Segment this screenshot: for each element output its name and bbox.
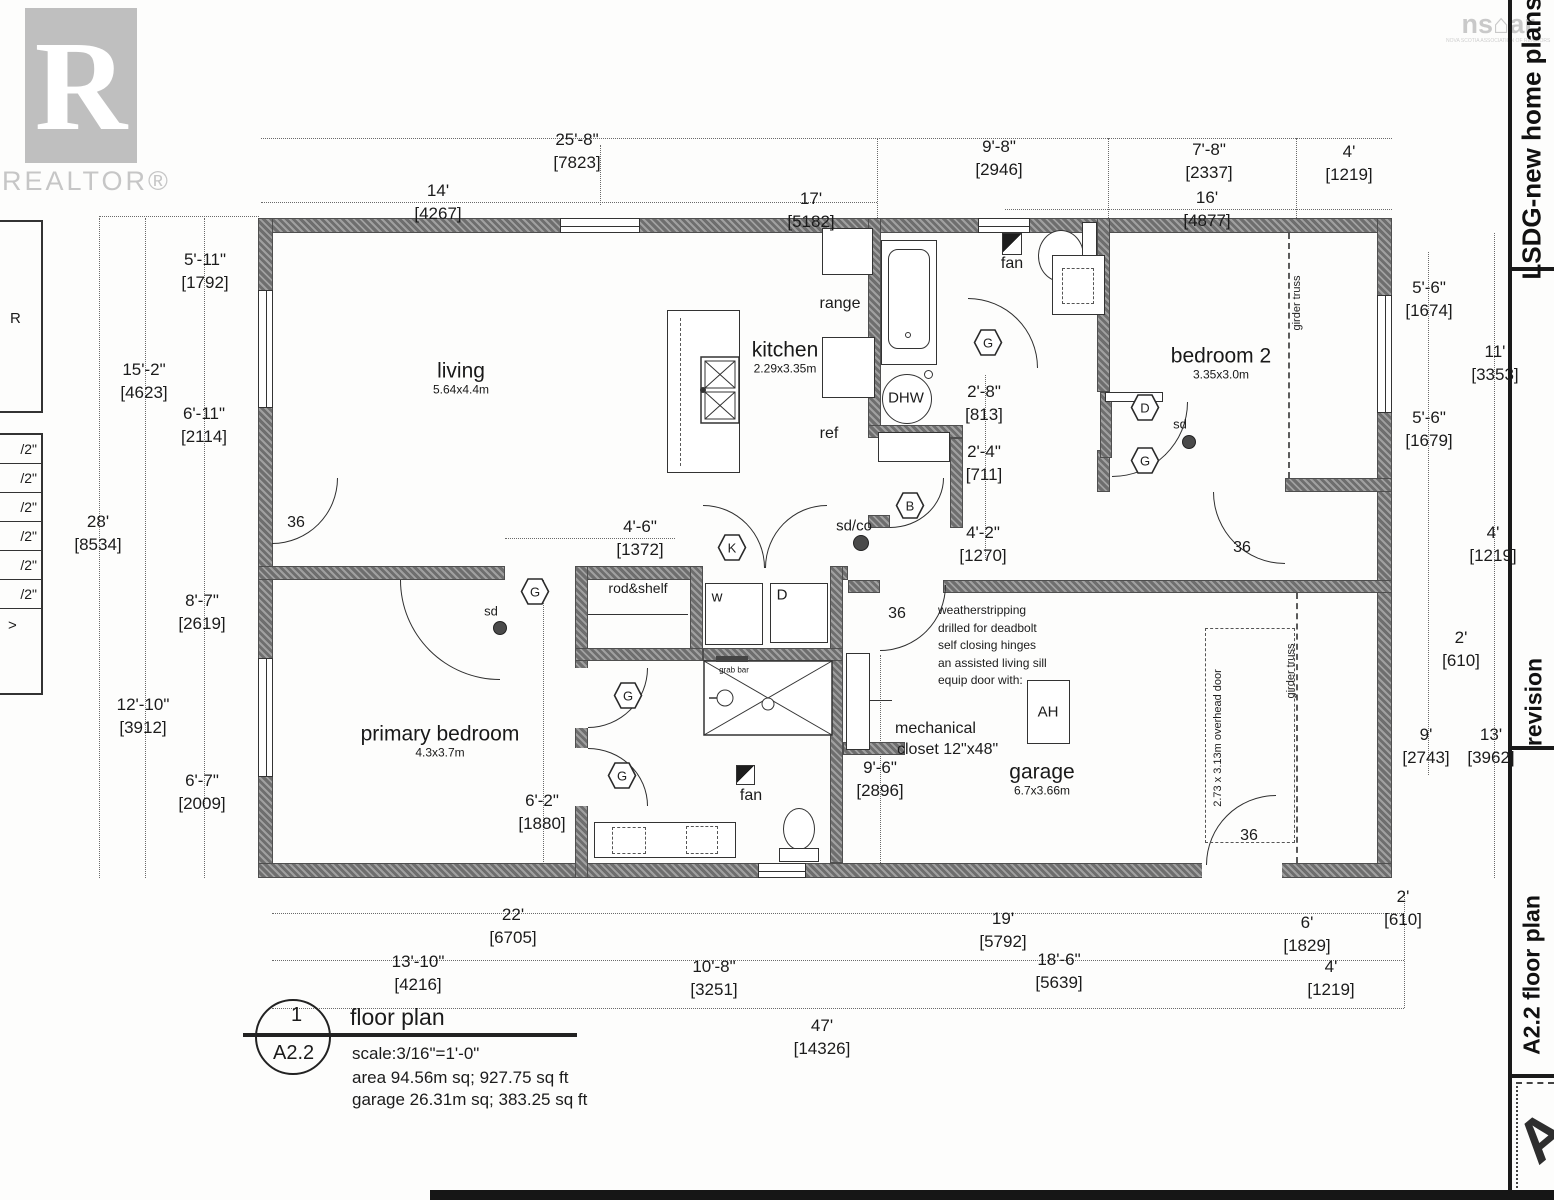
dimension-label: 15'-2"[4623] <box>120 358 167 404</box>
dimension-label: 5'-11"[1792] <box>181 248 228 294</box>
hex-symbol-g: G <box>973 329 1003 362</box>
decor: G <box>613 682 643 710</box>
dimension-label: 2'-8"[813] <box>965 380 1003 426</box>
door-size-label: 36 <box>1233 539 1251 557</box>
dimension-mm: [4267] <box>414 202 461 225</box>
dimension-feet: 9' <box>1402 723 1449 746</box>
door-spec-note: weatherstrippingdrilled for deadboltself… <box>938 602 1047 690</box>
dimension-feet: 5'-11" <box>181 248 228 271</box>
dimension-label: 4'-6"[1372] <box>616 515 663 561</box>
room-name: kitchen <box>752 339 819 362</box>
hex-letter: G <box>530 585 540 600</box>
room-size: 2.29x3.35m <box>752 362 819 376</box>
hex-symbol-g: G <box>613 682 643 715</box>
dimension-label: 6'[1829] <box>1283 911 1330 957</box>
dimension-mm: [2896] <box>856 779 903 802</box>
window <box>758 863 806 878</box>
plan-annotation: sd <box>1173 417 1187 432</box>
dimension-mm: [14326] <box>794 1037 851 1060</box>
dimension-label: 18'-6"[5639] <box>1035 948 1082 994</box>
dimension-feet: 9'-6" <box>856 756 903 779</box>
schedule-row: /2" <box>0 580 41 609</box>
wall-segment <box>575 566 703 580</box>
wall-segment <box>848 580 880 593</box>
room-size: 4.3x3.7m <box>361 746 520 760</box>
dimension-feet: 4' <box>1325 140 1372 163</box>
note-line: drilled for deadbolt <box>938 620 1047 638</box>
door-swing-arc <box>400 580 500 680</box>
note-line: weatherstripping <box>938 602 1047 620</box>
dimension-feet: 2'-4" <box>966 440 1003 463</box>
wall-segment <box>690 566 703 661</box>
plan-annotation: mechanical <box>895 720 976 738</box>
dimension-label: 25'-8"[7823] <box>553 128 600 174</box>
dimension-feet: 2'-8" <box>965 380 1003 403</box>
hex-letter: D <box>1140 401 1149 416</box>
dimension-feet: 13'-10" <box>392 950 445 973</box>
drawing-garage-area: garage 26.31m sq; 383.25 sq ft <box>352 1090 587 1110</box>
decor <box>717 690 733 706</box>
dimension-label: 2'[610] <box>1384 885 1422 931</box>
room-label: bedroom 23.35x3.0m <box>1171 345 1271 382</box>
dimension-mm: [610] <box>1442 649 1480 672</box>
dimension-label: 47'[14326] <box>794 1014 851 1060</box>
dimension-mm: [610] <box>1384 908 1422 931</box>
dimension-mm: [7823] <box>553 151 600 174</box>
left-schedule-bracket: R <box>0 220 43 413</box>
room-name: primary bedroom <box>361 723 520 746</box>
dimension-feet: 25'-8" <box>553 128 600 151</box>
plan-annotation: girder truss <box>1291 275 1303 330</box>
dimension-mm: [3251] <box>690 978 737 1001</box>
hex-letter: G <box>1140 454 1150 469</box>
realtor-logo-text: REALTOR® <box>2 166 171 197</box>
mech-closet-leader <box>870 700 892 701</box>
room-name: bedroom 2 <box>1171 345 1271 368</box>
dimension-mm: [4623] <box>120 381 167 404</box>
dimension-mm: [1674] <box>1405 299 1452 322</box>
schedule-row: /2" <box>0 493 41 522</box>
hex-letter: K <box>728 541 737 556</box>
dimension-mm: [1792] <box>181 271 228 294</box>
plan-annotation: 2.73 x 3.13m overhead door <box>1212 669 1224 807</box>
schedule-row: /2" <box>0 464 41 493</box>
smoke-detector-dot <box>493 621 507 635</box>
dimension-feet: 16' <box>1183 186 1230 209</box>
dimension-label: 4'-2"[1270] <box>959 521 1006 567</box>
dimension-feet: 14' <box>414 179 461 202</box>
dimension-feet: 9'-8" <box>975 135 1022 158</box>
plan-annotation: D <box>777 587 788 604</box>
sheet-corner-box: A <box>1516 1082 1554 1200</box>
dimension-feet: 4'-2" <box>959 521 1006 544</box>
dimension-feet: 2' <box>1442 626 1480 649</box>
ensuite-toilet-bowl <box>783 808 815 850</box>
dimension-feet: 6'-11" <box>181 402 227 425</box>
hex-symbol-d: D <box>1130 394 1160 427</box>
hex-symbol-b: B <box>895 492 925 525</box>
dimension-mm: [1219] <box>1307 978 1354 1001</box>
plan-annotation: rod&shelf <box>608 580 667 596</box>
window <box>258 658 273 777</box>
dimension-label: 4'[1219] <box>1307 955 1354 1001</box>
dimension-line <box>99 216 259 217</box>
mechanical-closet <box>846 653 870 750</box>
dimension-label: 9'-8"[2946] <box>975 135 1022 181</box>
dimension-mm: [2114] <box>181 425 227 448</box>
title-underline <box>243 1033 577 1037</box>
door-size-label: 36 <box>1240 827 1258 845</box>
truss-dashed-line <box>680 318 681 466</box>
dimension-label: 2'[610] <box>1442 626 1480 672</box>
dimension-feet: 19' <box>979 907 1026 930</box>
kitchen-counter <box>822 228 873 275</box>
door-opening <box>575 748 588 806</box>
door-size-label: 36 <box>888 605 906 623</box>
dimension-feet: 18'-6" <box>1035 948 1082 971</box>
room-size: 5.64x4.4m <box>433 383 489 397</box>
detail-sheet-number: A2.2 <box>273 1042 314 1065</box>
schedule-row-arrow: > <box>0 609 41 693</box>
door-size-label: 36 <box>287 514 305 532</box>
plan-annotation: AH <box>1038 704 1059 721</box>
dimension-line <box>1108 138 1109 218</box>
schedule-row: /2" <box>0 435 41 464</box>
dimension-label: 9'[2743] <box>1402 723 1449 769</box>
dimension-mm: [5639] <box>1035 971 1082 994</box>
dimension-label: 19'[5792] <box>979 907 1026 953</box>
sheet-bottom-border <box>430 1190 1554 1200</box>
dimension-mm: [813] <box>965 403 1003 426</box>
drawing-scale: scale:3/16"=1'-0" <box>352 1044 479 1064</box>
dimension-label: 6'-2"[1880] <box>518 789 565 835</box>
hex-letter: G <box>983 336 993 351</box>
hex-symbol-k: K <box>717 534 747 567</box>
plan-annotation: fan <box>1001 255 1023 273</box>
dimension-mm: [3962] <box>1467 746 1514 769</box>
dimension-feet: 6' <box>1283 911 1330 934</box>
dimension-label: 6'-7"[2009] <box>178 769 225 815</box>
dimension-line <box>877 138 878 218</box>
house-icon: ⌂ <box>1493 9 1509 39</box>
dimension-label: 7'-8"[2337] <box>1185 138 1232 184</box>
decor: G <box>520 578 550 606</box>
ensuite-toilet-tank <box>779 848 819 862</box>
dimension-label: 9'-6"[2896] <box>856 756 903 802</box>
plan-annotation: sd <box>484 604 498 619</box>
realtor-r-glyph: R <box>35 22 127 150</box>
door-opening <box>575 668 588 728</box>
decor: G <box>973 329 1003 357</box>
dimension-line <box>272 913 1404 914</box>
dimension-feet: 6'-2" <box>518 789 565 812</box>
sidebar-divider <box>1512 746 1554 750</box>
dimension-label: 4'[1219] <box>1469 521 1516 567</box>
sidebar-series-label: LSDG-new home plans <box>1517 0 1548 280</box>
dimension-mm: [1219] <box>1325 163 1372 186</box>
schedule-row: /2" <box>0 522 41 551</box>
dimension-feet: 5'-6" <box>1405 406 1452 429</box>
dimension-feet: 4'-6" <box>616 515 663 538</box>
dimension-label: 13'[3962] <box>1467 723 1514 769</box>
dimension-mm: [2337] <box>1185 161 1232 184</box>
dimension-feet: 4' <box>1469 521 1516 544</box>
plan-annotation: sd/co <box>836 518 872 535</box>
grab-bar <box>716 656 748 662</box>
hex-letter: G <box>617 769 627 784</box>
truss-dashed-line <box>1296 593 1298 863</box>
kitchen-counter <box>822 337 875 398</box>
dimension-label: 14'[4267] <box>414 179 461 225</box>
smoke-detector-dot <box>1182 435 1196 449</box>
dimension-label: 17'[5182] <box>787 187 834 233</box>
kitchen-sink <box>700 356 740 424</box>
dimension-feet: 5'-6" <box>1405 276 1452 299</box>
decor <box>700 387 706 393</box>
dimension-mm: [1679] <box>1405 429 1452 452</box>
dimension-feet: 15'-2" <box>120 358 167 381</box>
bath-sink <box>1062 268 1094 304</box>
dimension-mm: [5792] <box>979 930 1026 953</box>
left-schedule-r: R <box>10 310 21 327</box>
room-size: 3.35x3.0m <box>1171 368 1271 382</box>
dimension-label: 4'[1219] <box>1325 140 1372 186</box>
decor <box>762 698 774 710</box>
room-name: living <box>433 360 489 383</box>
left-schedule-rows: /2"/2"/2"/2"/2"/2"> <box>0 433 43 695</box>
dimension-mm: [1372] <box>616 538 663 561</box>
dimension-label: 8'-7"[2619] <box>178 589 225 635</box>
dimension-mm: [8534] <box>74 533 121 556</box>
hex-symbol-g: G <box>1130 447 1160 480</box>
sidebar-sheet-label: A2.2 floor plan <box>1519 895 1546 1055</box>
truss-dashed-line <box>1288 233 1290 478</box>
dimension-label: 2'-4"[711] <box>966 440 1003 486</box>
dimension-label: 10'-8"[3251] <box>690 955 737 1001</box>
dimension-feet: 6'-7" <box>178 769 225 792</box>
plan-annotation: girder truss <box>1285 643 1297 698</box>
dimension-label: 5'-6"[1679] <box>1405 406 1452 452</box>
dimension-feet: 7'-8" <box>1185 138 1232 161</box>
note-line: equip door with: <box>938 672 1047 690</box>
dimension-label: 12'-10"[3912] <box>117 693 170 739</box>
wall-segment <box>1285 478 1392 492</box>
room-label: garage6.7x3.66m <box>1009 761 1074 798</box>
dimension-mm: [1270] <box>959 544 1006 567</box>
dimension-label: 16'[4877] <box>1183 186 1230 232</box>
drawing-title: floor plan <box>350 1004 445 1031</box>
dimension-feet: 8'-7" <box>178 589 225 612</box>
dimension-mm: [2946] <box>975 158 1022 181</box>
decor: ns <box>1462 9 1494 39</box>
dhw-vent <box>924 370 933 379</box>
wall-segment <box>575 648 703 661</box>
tub-drain <box>905 332 911 338</box>
decor: D <box>1130 394 1160 422</box>
dimension-feet: 22' <box>489 903 536 926</box>
room-name: garage <box>1009 761 1074 784</box>
dimension-feet: 4' <box>1307 955 1354 978</box>
dimension-label: 6'-11"[2114] <box>181 402 227 448</box>
decor: G <box>607 762 637 790</box>
dimension-line <box>145 218 146 878</box>
hex-letter: B <box>906 499 915 514</box>
dimension-feet: 12'-10" <box>117 693 170 716</box>
dimension-mm: [4216] <box>392 973 445 996</box>
wall-segment <box>943 580 1392 593</box>
dimension-feet: 2' <box>1384 885 1422 908</box>
dimension-line <box>261 202 877 203</box>
hex-letter: G <box>623 689 633 704</box>
dimension-mm: [4877] <box>1183 209 1230 232</box>
dimension-label: 13'-10"[4216] <box>392 950 445 996</box>
drawing-area: area 94.56m sq; 927.75 sq ft <box>352 1068 568 1088</box>
ensuite-sink <box>612 827 646 854</box>
dimension-mm: [1880] <box>518 812 565 835</box>
smoke-detector-dot <box>853 535 869 551</box>
dimension-mm: [6705] <box>489 926 536 949</box>
plan-annotation: w <box>712 589 723 606</box>
window <box>978 218 1030 233</box>
dimension-mm: [1829] <box>1283 934 1330 957</box>
dimension-feet: 17' <box>787 187 834 210</box>
closet-shelf <box>588 614 688 615</box>
dimension-mm: [3912] <box>117 716 170 739</box>
plan-annotation: fan <box>740 787 762 805</box>
dimension-label: 22'[6705] <box>489 903 536 949</box>
ensuite-sink <box>686 826 718 854</box>
dimension-mm: [5182] <box>787 210 834 233</box>
schedule-row: /2" <box>0 551 41 580</box>
detail-number: 1 <box>291 1004 302 1027</box>
dimension-mm: [711] <box>966 463 1003 486</box>
sheet-corner-letter: A <box>1516 1096 1554 1177</box>
dimension-feet: 28' <box>74 510 121 533</box>
dimension-mm: [2009] <box>178 792 225 815</box>
sheet-border <box>1508 0 1512 1200</box>
dimension-mm: [2619] <box>178 612 225 635</box>
powder-counter <box>878 432 950 462</box>
floor-plan-sheet: R REALTOR® ns⌂ar NOVA SCOTIA ASSOCIATION… <box>0 0 1554 1200</box>
door-swing-arc <box>765 505 827 568</box>
fan-icon <box>1002 233 1022 255</box>
note-line: an assisted living sill <box>938 655 1047 673</box>
room-label: primary bedroom4.3x3.7m <box>361 723 520 760</box>
wall-segment <box>258 566 505 580</box>
dimension-label: 5'-6"[1674] <box>1405 276 1452 322</box>
plan-annotation: grab bar <box>719 666 749 675</box>
decor: B <box>895 492 925 520</box>
fan-icon <box>736 765 755 785</box>
wall-segment <box>950 438 963 528</box>
window <box>560 218 640 233</box>
decor: K <box>717 534 747 562</box>
plan-annotation: closet 12"x48" <box>897 741 998 759</box>
dimension-feet: 10'-8" <box>690 955 737 978</box>
hex-symbol-g: G <box>607 762 637 795</box>
dimension-mm: [2743] <box>1402 746 1449 769</box>
dimension-feet: 11' <box>1471 340 1518 363</box>
dimension-line <box>1296 138 1297 218</box>
decor <box>701 357 739 423</box>
sidebar-revision-label: revision <box>1521 658 1548 746</box>
room-label: kitchen2.29x3.35m <box>752 339 819 376</box>
window <box>258 290 273 408</box>
dimension-mm: [1219] <box>1469 544 1516 567</box>
decor: G <box>1130 447 1160 475</box>
hex-symbol-g: G <box>520 578 550 611</box>
plan-annotation: ref <box>820 425 839 443</box>
dimension-label: 11'[3353] <box>1471 340 1518 386</box>
door-swing-arc <box>272 478 338 544</box>
sidebar-divider <box>1512 1074 1554 1078</box>
window <box>1377 295 1392 413</box>
dimension-line <box>1428 252 1429 775</box>
note-line: self closing hinges <box>938 637 1047 655</box>
dimension-feet: 47' <box>794 1014 851 1037</box>
realtor-logo-icon: R <box>25 8 137 163</box>
plan-annotation: DHW <box>888 390 924 407</box>
dimension-label: 28'[8534] <box>74 510 121 556</box>
room-size: 6.7x3.66m <box>1009 784 1074 798</box>
dimension-mm: [3353] <box>1471 363 1518 386</box>
dimension-feet: 13' <box>1467 723 1514 746</box>
plan-annotation: range <box>820 295 861 313</box>
room-label: living5.64x4.4m <box>433 360 489 397</box>
